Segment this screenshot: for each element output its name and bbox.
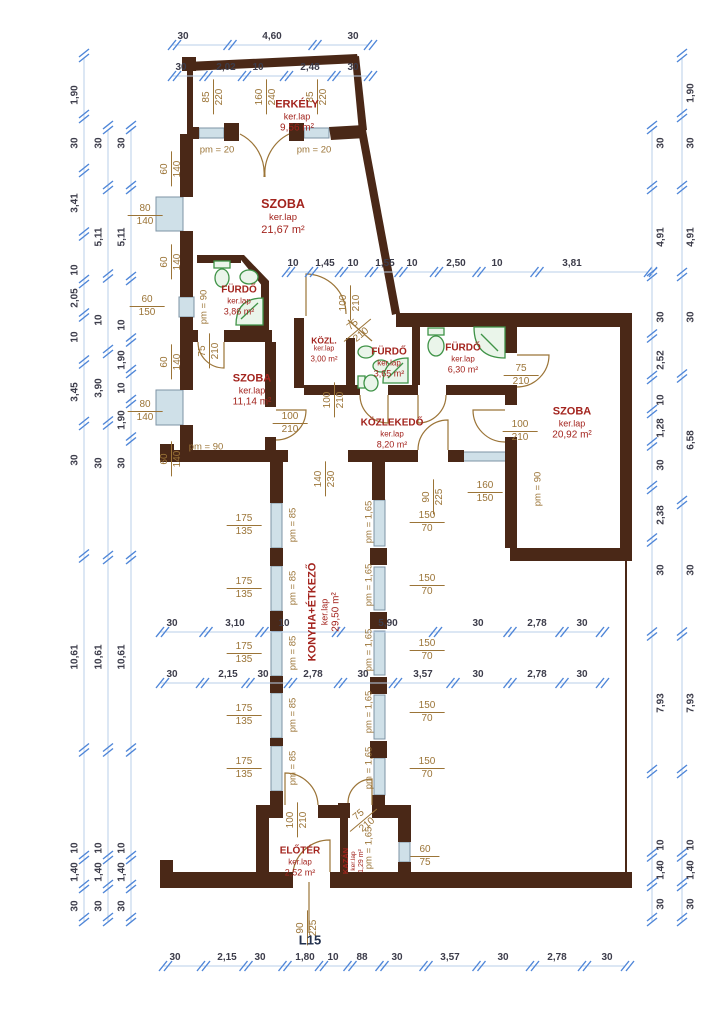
room-label: SZOBAker.lap21,67 m² [261,197,305,237]
opening-height: 135 [227,716,262,728]
dim-value: 3,10 [225,618,244,629]
parapet-label: pm = 90 [189,442,224,453]
room-area: 6,30 m² [445,364,481,375]
opening-height: 220 [318,80,330,115]
parapet-label: pm = 1,65 [364,564,375,607]
room-name: KAZÁN [341,848,350,874]
dim-value: 30 [94,457,105,468]
room-finish: ker.lap [350,848,358,874]
room-label: ELŐTÉRker.lap2,52 m² [280,846,321,879]
dim-value: 1,45 [315,258,334,269]
dim-value: 10 [278,618,289,629]
dim-value: 1,90 [117,410,128,429]
opening-size-label: 175135 [227,703,262,727]
opening-size-label: 75210 [504,363,539,387]
room-name: KONYHA+ÉTKEZŐ [307,563,320,662]
dim-value: 2,78 [547,952,566,963]
dim-value: 30 [686,137,697,148]
room-area: 2,52 m² [280,867,321,878]
room-area: 1,29 m² [358,848,367,874]
opening-height: 75 [410,857,439,869]
parapet-label: pm = 90 [199,290,210,325]
dim-value: 10 [287,258,298,269]
room-area: 11,14 m² [233,397,272,409]
dim-value: 2,52 [656,350,667,369]
opening-size-label: 175135 [227,576,262,600]
dim-value: 10 [327,952,338,963]
opening-size-label: 15070 [410,573,445,597]
dim-value: 1,90 [686,83,697,102]
opening-width: 100 [285,803,298,838]
opening-width: 80 [128,399,163,412]
parapet-label: pm = 20 [200,145,235,156]
dim-value: 10 [686,839,697,850]
opening-height: 140 [128,216,163,228]
parapet-label: pm = 85 [288,751,299,786]
dim-value: 7,93 [656,693,667,712]
room-area: 9,56 m² [275,123,319,135]
opening-width: 100 [273,411,308,424]
dim-value: 30 [656,564,667,575]
room-name: ERKÉLY [275,99,319,112]
parapet-label: pm = 85 [288,508,299,543]
dim-value: 10 [252,62,263,73]
room-finish: ker.lap [261,212,305,224]
dim-value: 4,91 [656,227,667,246]
room-area: 21,67 m² [261,224,305,237]
opening-width: 100 [338,286,351,321]
room-finish: ker.lap [320,563,331,662]
room-label: KÖZLEKEDŐker.lap8,20 m² [361,418,424,451]
dim-value: 30 [656,311,667,322]
room-label: FÜRDŐker.lap6,30 m² [445,343,481,376]
opening-width: 75 [197,334,210,369]
dim-value: 5,11 [94,228,105,247]
opening-width: 150 [410,638,445,651]
dim-value: 2,78 [527,618,546,629]
room-area: 29,50 m² [331,563,343,662]
dim-value: 10 [347,258,358,269]
opening-width: 100 [503,419,538,432]
opening-width: 150 [410,700,445,713]
room-finish: ker.lap [310,346,337,355]
dim-value: 30 [166,669,177,680]
opening-height: 70 [410,651,445,663]
opening-width: 85 [201,80,214,115]
dim-value: 10 [117,319,128,330]
opening-size-label: 100210 [322,383,346,418]
plan-code-label: L15 [299,933,321,948]
dim-value: 4,91 [686,227,697,246]
dim-value: 3,81 [562,258,581,269]
dim-value: 2,05 [70,288,81,307]
dim-value: 30 [347,31,358,42]
opening-width: 175 [227,756,262,769]
dim-value: 2,15 [218,669,237,680]
dim-value: 30 [656,459,667,470]
dim-value: 3,41 [70,193,81,212]
dim-value: 30 [257,669,268,680]
opening-size-label: 60140 [159,152,183,187]
opening-size-label: 60150 [130,294,165,318]
dim-value: 3,90 [94,378,105,397]
opening-size-label: 6075 [410,844,439,868]
opening-size-label: 85220 [201,80,225,115]
room-area: 20,92 m² [552,430,591,442]
parapet-label: pm = 1,65 [364,629,375,672]
opening-size-label: 15070 [410,700,445,724]
dim-value: 30 [472,669,483,680]
opening-height: 150 [468,493,503,505]
parapet-label: pm = 85 [288,571,299,606]
dim-value: 10 [406,258,417,269]
dim-value: 1,40 [70,862,81,881]
dim-value: 30 [472,618,483,629]
dim-value: 30 [117,900,128,911]
dim-value: 10,61 [94,644,105,669]
opening-width: 60 [130,294,165,307]
room-name: SZOBA [261,197,305,212]
opening-size-label: 15070 [410,638,445,662]
dim-value: 10 [70,331,81,342]
opening-width: 175 [227,513,262,526]
opening-size-label: 75210 [197,334,221,369]
dim-value: 1,90 [117,350,128,369]
room-name: ELŐTÉR [280,846,321,858]
room-finish: ker.lap [371,359,407,369]
dim-value: 10 [491,258,502,269]
opening-height: 140 [172,442,184,477]
dim-value: 1,90 [70,85,81,104]
dim-value: 30 [94,137,105,148]
dim-value: 1,55 [375,258,394,269]
opening-width: 140 [313,462,326,497]
dim-value: 30 [391,952,402,963]
dim-value: 30 [94,900,105,911]
dim-value: 1,40 [94,862,105,881]
opening-height: 210 [210,334,222,369]
dim-value: 30 [175,62,186,73]
opening-width: 75 [504,363,539,376]
dim-value: 30 [497,952,508,963]
parapet-label: pm = 1,65 [364,747,375,790]
dim-value: 30 [656,137,667,148]
opening-width: 60 [159,245,172,280]
opening-size-label: 160150 [468,480,503,504]
opening-width: 175 [227,641,262,654]
dim-value: 2,78 [527,669,546,680]
room-label: KÖZL.ker.lap3,00 m² [310,336,337,365]
opening-size-label: 60140 [159,245,183,280]
opening-size-label: 15070 [410,756,445,780]
opening-height: 140 [172,245,184,280]
parapet-label: pm = 85 [288,698,299,733]
room-label: FÜRDŐker.lap3,65 m² [371,347,407,380]
dim-value: 30 [576,669,587,680]
dim-value: 88 [356,952,367,963]
room-area: 3,65 m² [371,368,407,379]
dim-value: 3,45 [70,382,81,401]
room-area: 8,20 m² [361,439,424,450]
opening-height: 220 [214,80,226,115]
room-label: ERKÉLYker.lap9,56 m² [275,99,319,136]
opening-size-label: 60140 [159,345,183,380]
room-name: KÖZL. [310,336,337,346]
dim-value: 30 [601,952,612,963]
dim-value: 2,48 [300,62,319,73]
opening-size-label: 80140 [128,399,163,423]
room-label: SZOBAker.lap11,14 m² [233,373,272,410]
room-finish: ker.lap [280,858,321,868]
dim-value: 1,28 [656,418,667,437]
opening-height: 135 [227,654,262,666]
room-label: KONYHA+ÉTKEZŐker.lap29,50 m² [307,563,344,662]
parapet-label: pm = 85 [288,636,299,671]
room-name: FÜRDŐ [221,285,257,297]
dim-value: 3,57 [440,952,459,963]
opening-width: 175 [227,703,262,716]
opening-height: 210 [335,383,347,418]
room-name: FÜRDŐ [371,347,407,359]
opening-width: 160 [254,80,267,115]
dim-value: 10 [94,314,105,325]
dim-value: 30 [70,454,81,465]
opening-size-label: 100210 [273,411,308,435]
dim-value: 10,61 [70,644,81,669]
opening-width: 160 [468,480,503,493]
dim-value: 30 [117,457,128,468]
opening-height: 210 [503,432,538,444]
parapet-label: pm = 90 [533,472,544,507]
opening-width: 150 [410,510,445,523]
room-name: SZOBA [233,373,272,386]
dim-value: 2,38 [656,505,667,524]
room-finish: ker.lap [361,430,424,440]
opening-height: 70 [410,769,445,781]
dim-value: 10 [94,842,105,853]
opening-size-label: 140230 [313,462,337,497]
room-finish: ker.lap [233,386,272,397]
room-finish: ker.lap [275,112,319,123]
room-finish: ker.lap [445,355,481,365]
room-area: 3,86 m² [221,306,257,317]
dim-value: 10,61 [117,644,128,669]
dim-value: 30 [686,898,697,909]
opening-height: 210 [298,803,310,838]
room-finish: ker.lap [221,297,257,307]
dim-value: 30 [347,62,358,73]
opening-height: 140 [172,345,184,380]
room-name: SZOBA [552,406,591,419]
dim-value: 1,80 [295,952,314,963]
dim-value: 30 [117,137,128,148]
opening-height: 210 [273,424,308,436]
dim-value: 30 [656,898,667,909]
opening-width: 80 [128,203,163,216]
opening-height: 150 [130,307,165,319]
dim-value: 30 [576,618,587,629]
opening-height: 135 [227,526,262,538]
dim-value: 10 [656,839,667,850]
opening-height: 230 [326,462,338,497]
room-name: KÖZLEKEDŐ [361,418,424,430]
dim-value: 4,60 [262,31,281,42]
room-name: FÜRDŐ [445,343,481,355]
parapet-label: pm = 20 [297,145,332,156]
opening-height: 140 [128,412,163,424]
opening-size-label: 175135 [227,756,262,780]
dim-value: 10 [656,394,667,405]
dim-value: 1,40 [686,860,697,879]
opening-width: 150 [410,573,445,586]
dim-value: 30 [177,31,188,42]
dim-value: 30 [254,952,265,963]
room-label: SZOBAker.lap20,92 m² [552,406,591,443]
opening-width: 175 [227,576,262,589]
opening-size-label: 80140 [128,203,163,227]
opening-height: 135 [227,589,262,601]
opening-height: 210 [504,376,539,388]
dim-value: 30 [70,900,81,911]
opening-size-label: 15070 [410,510,445,534]
opening-size-label: 175135 [227,513,262,537]
opening-size-label: 100210 [285,803,309,838]
opening-height: 135 [227,769,262,781]
opening-height: 70 [410,586,445,598]
dim-value: 30 [166,618,177,629]
dim-value: 10 [117,382,128,393]
opening-width: 60 [410,844,439,857]
dim-value: 3,57 [413,669,432,680]
opening-size-label: 175135 [227,641,262,665]
dim-value: 10 [70,842,81,853]
dim-value: 2,15 [217,952,236,963]
dim-value: 30 [70,137,81,148]
dim-value: 30 [686,311,697,322]
opening-width: 100 [322,383,335,418]
opening-size-label: 100210 [503,419,538,443]
parapet-label: pm = 1,65 [364,691,375,734]
room-label: KAZÁNker.lap1,29 m² [341,848,367,874]
opening-width: 60 [159,442,172,477]
dim-value: 2,02 [216,62,235,73]
dim-value: 7,93 [686,693,697,712]
opening-height: 70 [410,713,445,725]
room-label: FÜRDŐker.lap3,86 m² [221,285,257,318]
dim-value: 1,40 [656,860,667,879]
opening-height: 140 [172,152,184,187]
floorplan-canvas: 304,6030302,02102,4830101,45101,55102,50… [0,0,718,1024]
room-area: 3,00 m² [310,355,337,365]
dim-value: 10 [117,842,128,853]
dim-value: 5,90 [378,618,397,629]
dim-value: 1,40 [117,862,128,881]
dim-value: 10 [70,264,81,275]
room-finish: ker.lap [552,419,591,430]
dim-value: 6,58 [686,430,697,449]
opening-width: 60 [159,152,172,187]
dim-value: 30 [686,564,697,575]
dim-value: 2,50 [446,258,465,269]
opening-width: 150 [410,756,445,769]
dim-value: 5,11 [117,228,128,247]
dim-value: 2,78 [303,669,322,680]
dim-value: 30 [169,952,180,963]
opening-size-label: 60140 [159,442,183,477]
labels-layer: 304,6030302,02102,4830101,45101,55102,50… [0,0,718,1024]
opening-height: 70 [410,523,445,535]
opening-width: 60 [159,345,172,380]
parapet-label: pm = 1,65 [364,501,375,544]
